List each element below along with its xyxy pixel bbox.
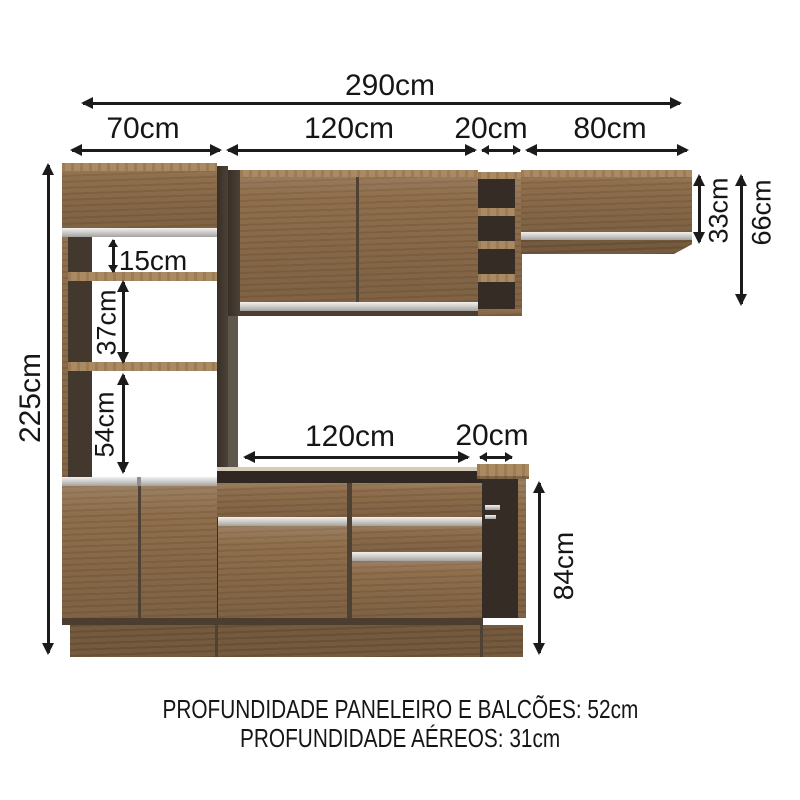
upper-niche-shelf-3: [478, 274, 515, 282]
counter-open-top: [217, 471, 483, 483]
right-cabinet-width-label: 80cm: [560, 114, 660, 144]
right-cabinet-width-arrow: [527, 149, 687, 152]
tower-width-label: 70cm: [93, 114, 193, 144]
tower-gap-15-arrow: [112, 240, 115, 272]
upper-section-height-arrow: [740, 176, 743, 304]
wall-cabinet-120-bottom-shadow: [240, 311, 478, 316]
counter-niche-hinge-1: [485, 505, 500, 510]
wall-cabinet-120-top-face: [240, 170, 478, 177]
counter-center-seam: [347, 483, 352, 618]
upper-niche-shelf-1: [478, 208, 515, 216]
counter-niche-hinge-2: [485, 515, 496, 519]
tower-gap-15-label: 15cm: [122, 246, 184, 276]
counter-left-handle: [218, 517, 347, 526]
upper-niche-top-face: [478, 172, 522, 179]
tower-width-arrow: [72, 149, 220, 152]
upper-cabinet-width-arrow: [228, 149, 475, 152]
footer-depth-note-1: PROFUNDIDADE PANELEIRO E BALCÕES: 52cm: [0, 694, 800, 725]
tall-cabinet-side-shadow: [228, 316, 238, 470]
tower-gap-37-label: 37cm: [47, 307, 167, 337]
tall-cabinet-top-door-handle: [62, 228, 217, 237]
counter-height-label: 84cm: [504, 551, 624, 581]
counter-width-label: 120cm: [290, 422, 410, 452]
tall-cabinet-bottom-shadow: [62, 618, 217, 625]
tall-cabinet-lower-door-seam: [138, 486, 141, 618]
wall-cabinet-120-door-seam: [356, 177, 359, 302]
wall-cabinet-80-bottom-box: [521, 240, 692, 254]
plinth: [70, 625, 523, 657]
counter-niche-top-slab: [477, 464, 529, 479]
wall-cabinet-120-doors: [240, 170, 478, 302]
tall-cabinet-top-door: [62, 163, 217, 228]
upper-niche-shelf-2: [478, 241, 515, 249]
counter-right-drawer: [352, 526, 483, 552]
counter-niche-interior: [482, 479, 518, 618]
counter-width-arrow: [245, 456, 468, 459]
plinth-seam-2: [480, 625, 483, 657]
upper-niche-width-arrow: [482, 149, 520, 152]
counter-right-handle-2: [352, 552, 483, 561]
counter-niche-width-arrow: [480, 456, 512, 459]
tall-cabinet-top-face: [62, 163, 217, 171]
upper-cabinet-width-label: 120cm: [289, 114, 409, 144]
wall-cabinet-120-handle-strip: [240, 302, 478, 311]
counter-bottom-shadow: [217, 618, 483, 625]
tower-gap-54-label: 54cm: [45, 409, 165, 439]
upper-niche-bottom: [478, 309, 522, 316]
upper-niche-width-label: 20cm: [441, 114, 541, 144]
wall-cabinet-80-top-face: [521, 170, 692, 177]
kitchen-cabinet-dimension-diagram: 290cm 70cm 120cm 20cm 80cm 225cm 15cm 37…: [0, 0, 800, 800]
counter-niche-width-label: 20cm: [442, 421, 542, 451]
counter-right-handle-1: [352, 517, 483, 526]
tall-cabinet-shelf-2: [68, 362, 217, 371]
upper-section-height-label: 66cm: [702, 197, 800, 227]
tall-cabinet-lower-handle-gap: [137, 477, 141, 486]
footer-depth-note-2: PROFUNDIDADE AÉREOS: 31cm: [0, 723, 800, 754]
counter-left-door: [218, 526, 347, 618]
wall-cabinet-120-side-panel: [228, 170, 240, 316]
counter-right-lower-front: [352, 561, 483, 618]
counter-niche-right-panel: [518, 479, 526, 618]
wall-cabinet-80-handle-strip: [521, 232, 692, 240]
plinth-seam-1: [215, 625, 218, 657]
total-width-label: 290cm: [330, 71, 450, 101]
